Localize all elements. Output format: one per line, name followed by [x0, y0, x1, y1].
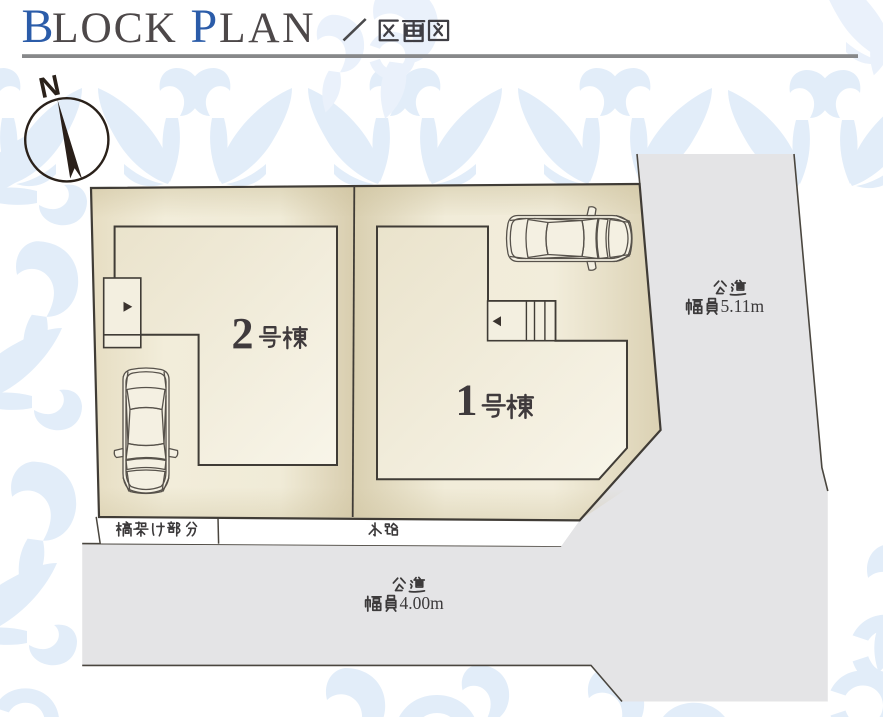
svg-text:5.11m: 5.11m: [721, 296, 765, 316]
svg-text:2: 2: [232, 309, 254, 358]
svg-text:4.00m: 4.00m: [400, 593, 445, 613]
svg-text:1: 1: [456, 376, 478, 425]
svg-text:BLOCKPLAN: BLOCKPLAN: [22, 0, 317, 53]
